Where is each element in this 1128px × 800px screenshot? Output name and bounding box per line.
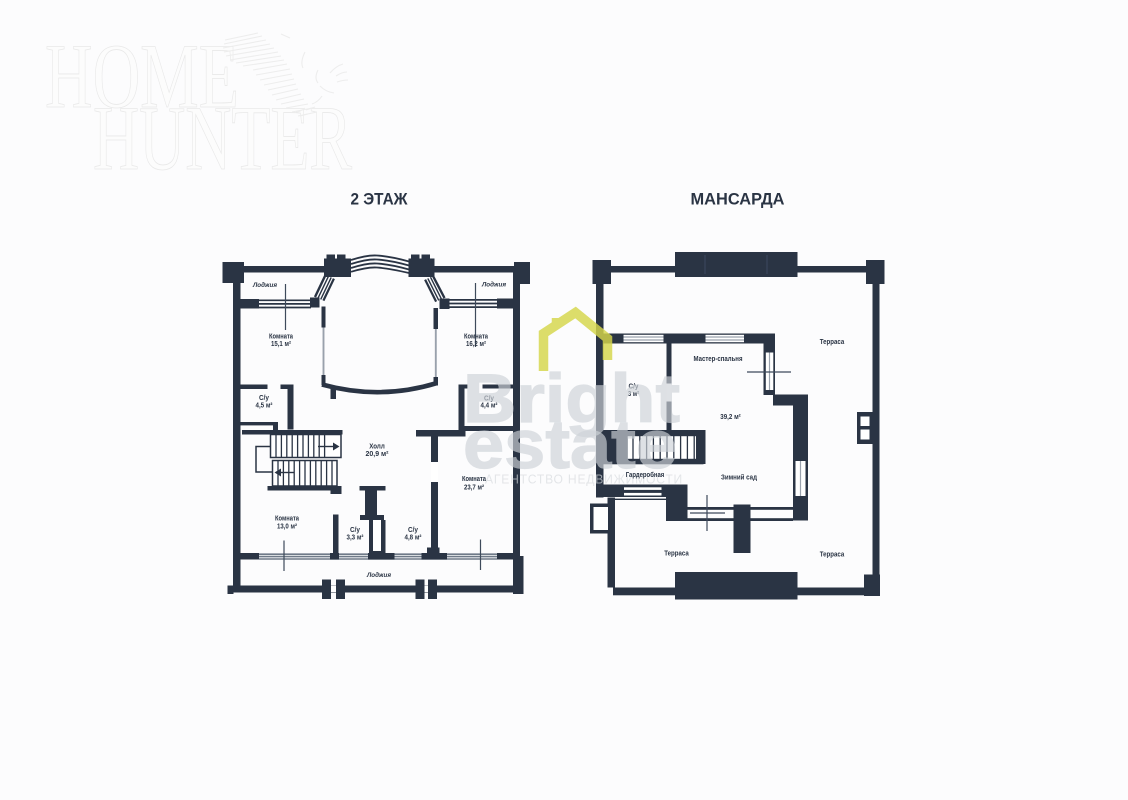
svg-text:4,8 м²: 4,8 м² [405, 535, 423, 542]
svg-text:Холл: Холл [369, 442, 385, 451]
svg-text:Комната: Комната [269, 332, 294, 341]
svg-text:Комната: Комната [275, 514, 300, 523]
svg-text:4,5 м²: 4,5 м² [256, 403, 274, 410]
svg-text:3,3 м²: 3,3 м² [347, 535, 365, 542]
svg-text:С/у: С/у [350, 525, 360, 534]
svg-text:Лоджия: Лоджия [366, 571, 391, 579]
svg-text:Гардеробная: Гардеробная [626, 470, 665, 479]
svg-text:13,0 м²: 13,0 м² [277, 524, 298, 531]
svg-text:МАНСАРДА: МАНСАРДА [691, 190, 785, 209]
svg-text:С/у: С/у [408, 525, 418, 534]
svg-text:39,2 м²: 39,2 м² [720, 414, 741, 421]
svg-text:Мастер-спальня: Мастер-спальня [694, 354, 743, 363]
svg-text:Комната: Комната [464, 332, 489, 341]
svg-text:23,7 м²: 23,7 м² [464, 485, 485, 492]
svg-text:Терраса: Терраса [664, 549, 689, 558]
svg-text:15,1 м²: 15,1 м² [271, 341, 292, 348]
svg-text:Зимний сад: Зимний сад [721, 473, 757, 482]
svg-text:Терраса: Терраса [820, 550, 845, 559]
svg-text:С/у: С/у [259, 393, 269, 402]
svg-text:20,9 м²: 20,9 м² [366, 451, 390, 458]
svg-text:Терраса: Терраса [820, 337, 845, 346]
svg-text:Лоджия: Лоджия [252, 281, 277, 289]
svg-text:Лоджия: Лоджия [481, 281, 506, 289]
svg-text:2 ЭТАЖ: 2 ЭТАЖ [351, 190, 409, 209]
svg-text:16,2 м²: 16,2 м² [466, 341, 487, 348]
svg-text:HUNTER: HUNTER [93, 87, 352, 189]
svg-text:Комната: Комната [462, 474, 487, 483]
